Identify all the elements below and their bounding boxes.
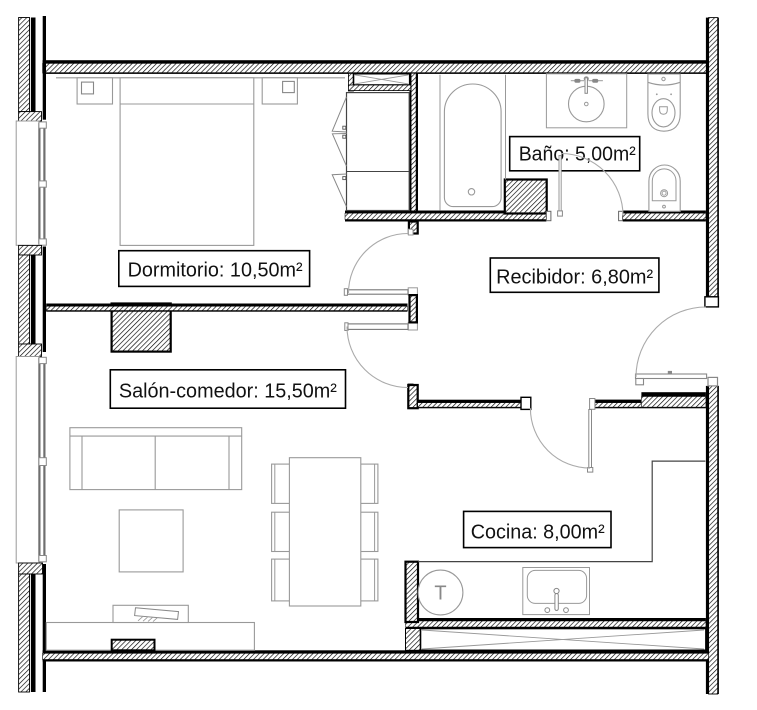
svg-text:Dormitorio: 10,50m²: Dormitorio: 10,50m² [128,258,303,281]
svg-text:T: T [434,583,446,605]
svg-text:Salón-comedor: 15,50m²: Salón-comedor: 15,50m² [119,380,337,403]
svg-text:Recibidor: 6,80m²: Recibidor: 6,80m² [496,266,653,289]
svg-text:Cocina: 8,00m²: Cocina: 8,00m² [471,520,605,543]
svg-text:Baño: 5,00m²: Baño: 5,00m² [519,142,636,165]
